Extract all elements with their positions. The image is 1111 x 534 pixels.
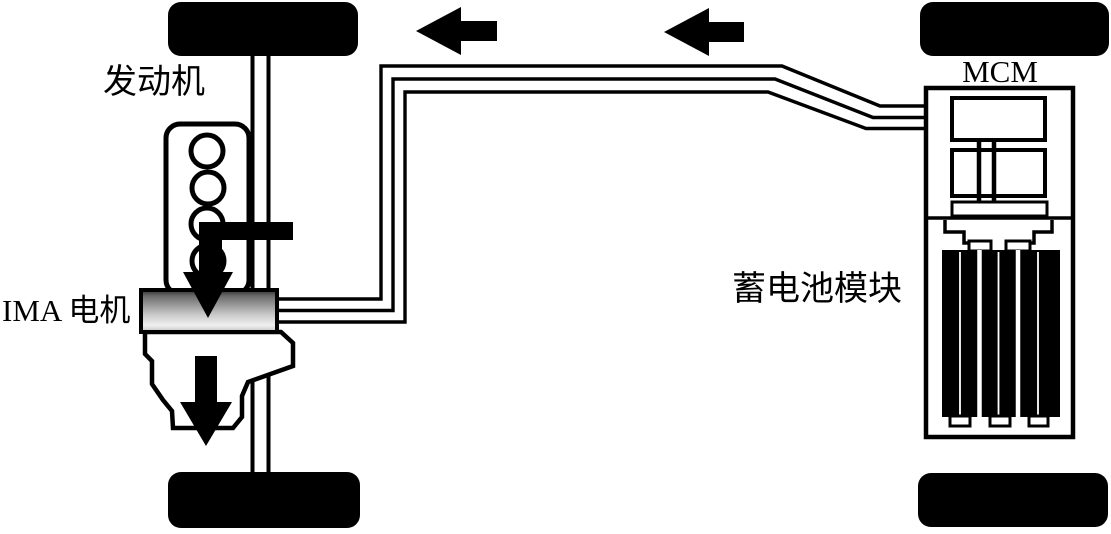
flow-left-arrow-icon	[416, 7, 497, 55]
battery-module-label: 蓄电池模块	[732, 270, 902, 308]
mcm-component-top	[952, 98, 1045, 140]
battery-foot-tab	[990, 416, 1010, 426]
wheel-rear-right	[918, 473, 1108, 527]
mcm-label: MCM	[962, 54, 1038, 89]
wheel-rear-left	[168, 472, 360, 528]
flow-left-arrow-icon	[664, 8, 744, 56]
diagram-canvas: 发动机 IMA 电机 蓄电池模块 MCM	[0, 0, 1111, 534]
mcm-component-middle	[952, 150, 1045, 196]
engine-label: 发动机	[103, 63, 205, 101]
engine-cylinder-icon	[191, 135, 223, 167]
battery-foot-tab	[1029, 416, 1048, 426]
wheel-front-right	[920, 2, 1109, 56]
battery-terminal-tab	[969, 241, 991, 251]
ima-powertrain-diagram: 发动机 IMA 电机 蓄电池模块 MCM	[0, 0, 1111, 534]
mcm-component-bar	[952, 202, 1047, 216]
power-bus-wire-1	[276, 66, 952, 299]
battery-foot-tab	[950, 416, 970, 426]
engine-cylinder-icon	[192, 172, 224, 204]
ima-motor-label: IMA 电机	[2, 293, 130, 328]
wheel-front-left	[168, 2, 358, 56]
battery-terminal-tab	[1006, 241, 1030, 251]
